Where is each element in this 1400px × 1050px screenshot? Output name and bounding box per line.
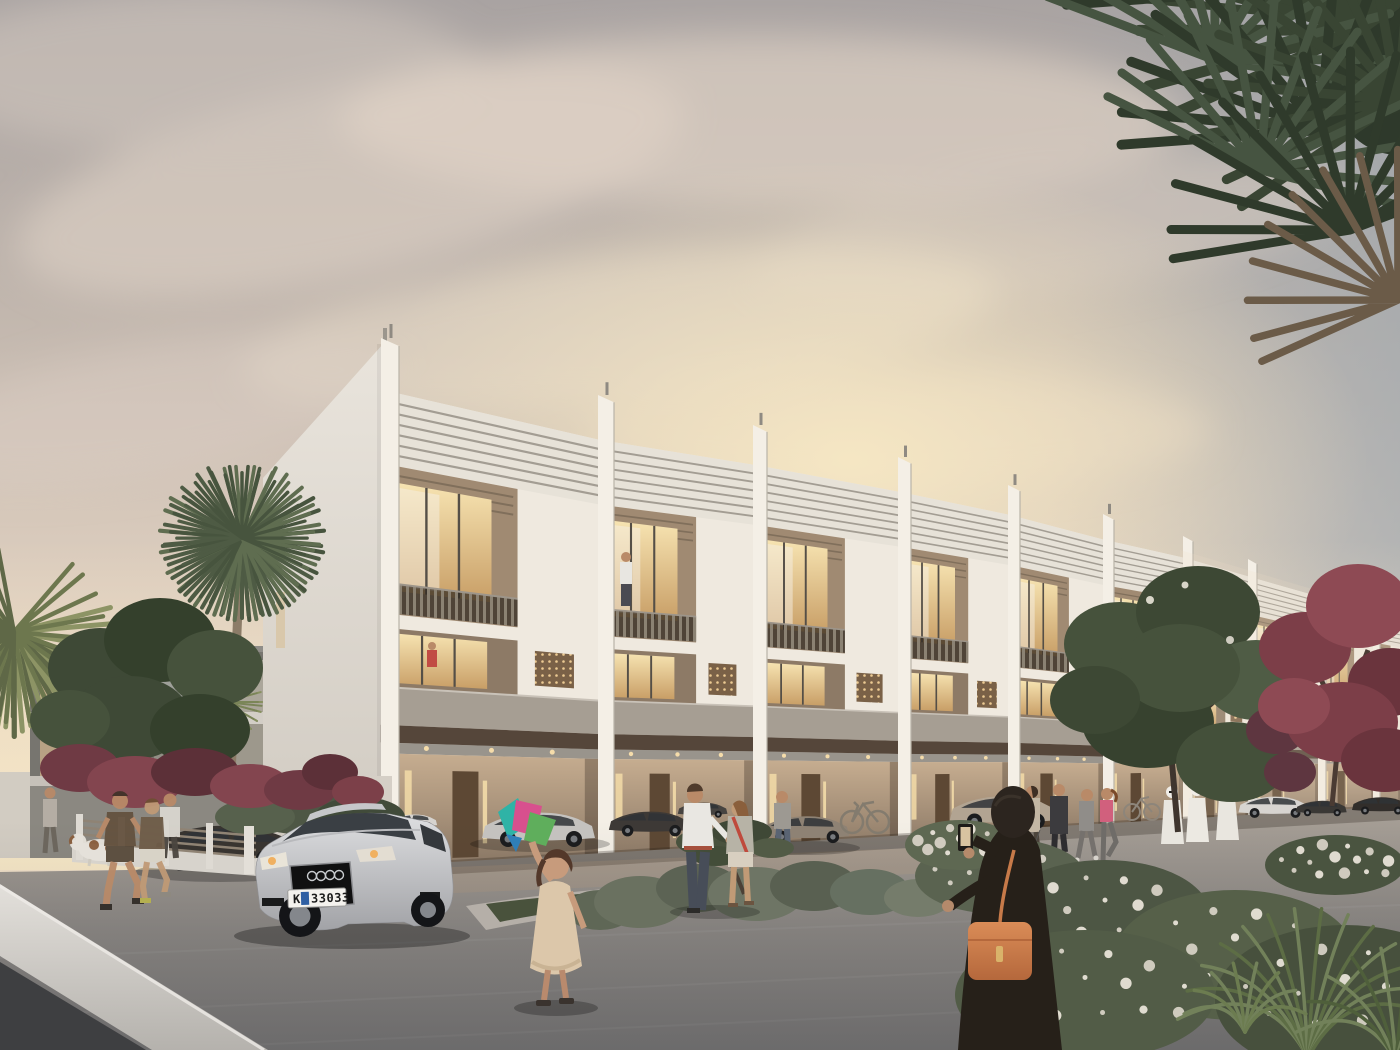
girl-sandal	[536, 1000, 551, 1006]
license-plate: K 33033	[288, 888, 350, 908]
bag-clasp	[996, 946, 1003, 962]
hand	[964, 848, 975, 859]
wheel-rim	[290, 906, 311, 927]
girl-sandal	[559, 998, 574, 1004]
headlight-glow	[268, 857, 276, 865]
hijab	[991, 786, 1035, 838]
girl-leg	[544, 970, 548, 1000]
balcony-person-red	[427, 642, 437, 667]
car-shadow	[234, 923, 470, 949]
plate-badge	[301, 892, 309, 905]
plate-prefix: K	[293, 892, 301, 906]
wheel-rim	[420, 902, 436, 918]
plate-number: 33033	[311, 890, 350, 905]
architectural-render: K 33033	[0, 0, 1400, 1050]
headlight-glow	[370, 850, 378, 858]
girl-leg	[562, 970, 566, 998]
phone-screen	[961, 827, 971, 846]
hand	[942, 900, 954, 912]
fog-intake	[262, 898, 284, 906]
